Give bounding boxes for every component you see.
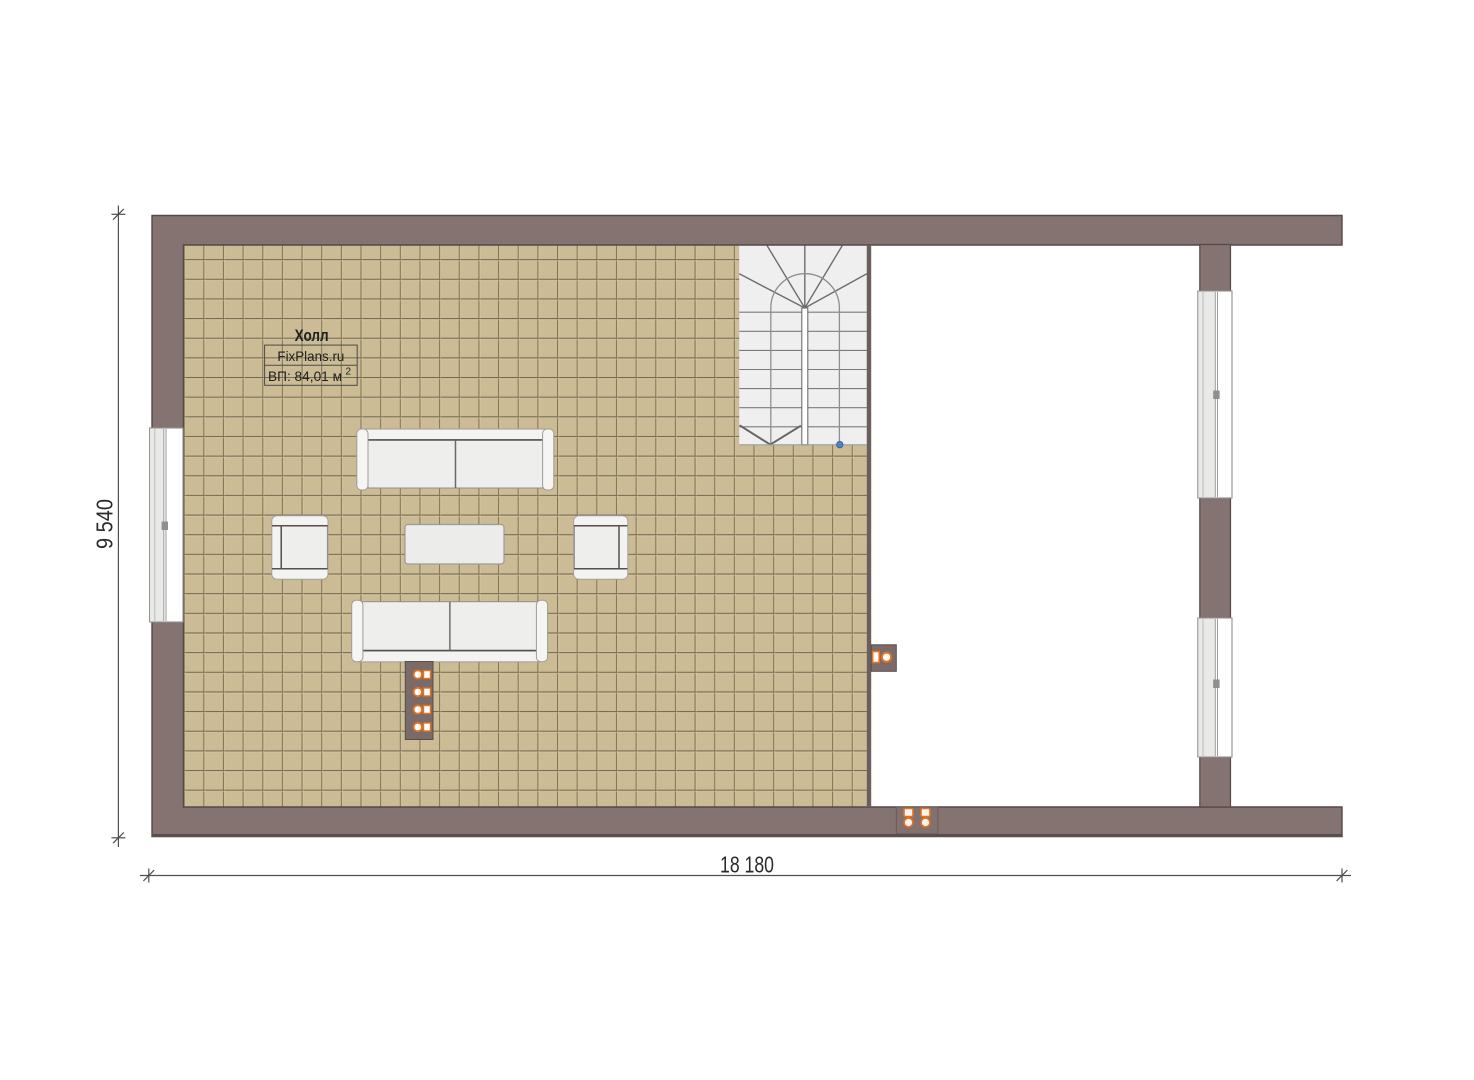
svg-text:ВП: 84,01 м: ВП: 84,01 м [268,368,342,384]
svg-text:FixPlans.ru: FixPlans.ru [277,348,344,364]
svg-text:9 540: 9 540 [92,499,118,549]
svg-text:Холл: Холл [295,327,329,345]
svg-text:2: 2 [346,367,352,378]
svg-text:18 180: 18 180 [720,852,774,878]
